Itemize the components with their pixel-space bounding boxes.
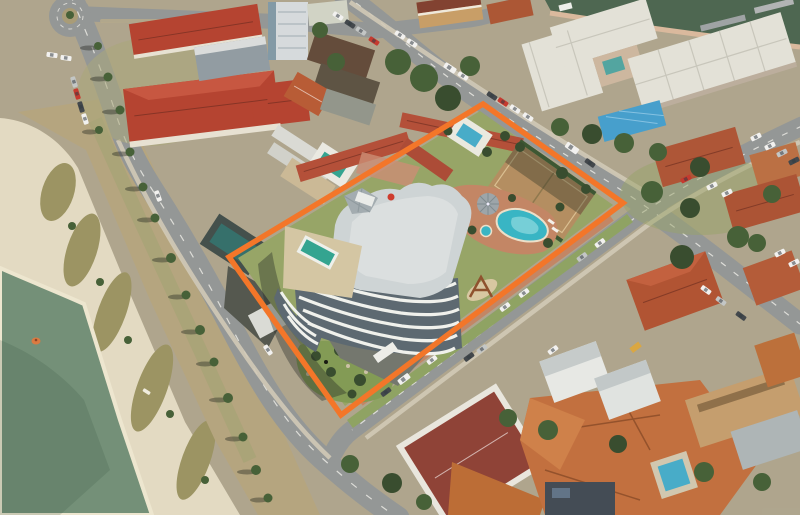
aerial-photo-canvas <box>0 0 800 515</box>
photo-tint-overlay <box>0 0 800 515</box>
aerial-photo <box>0 0 800 515</box>
